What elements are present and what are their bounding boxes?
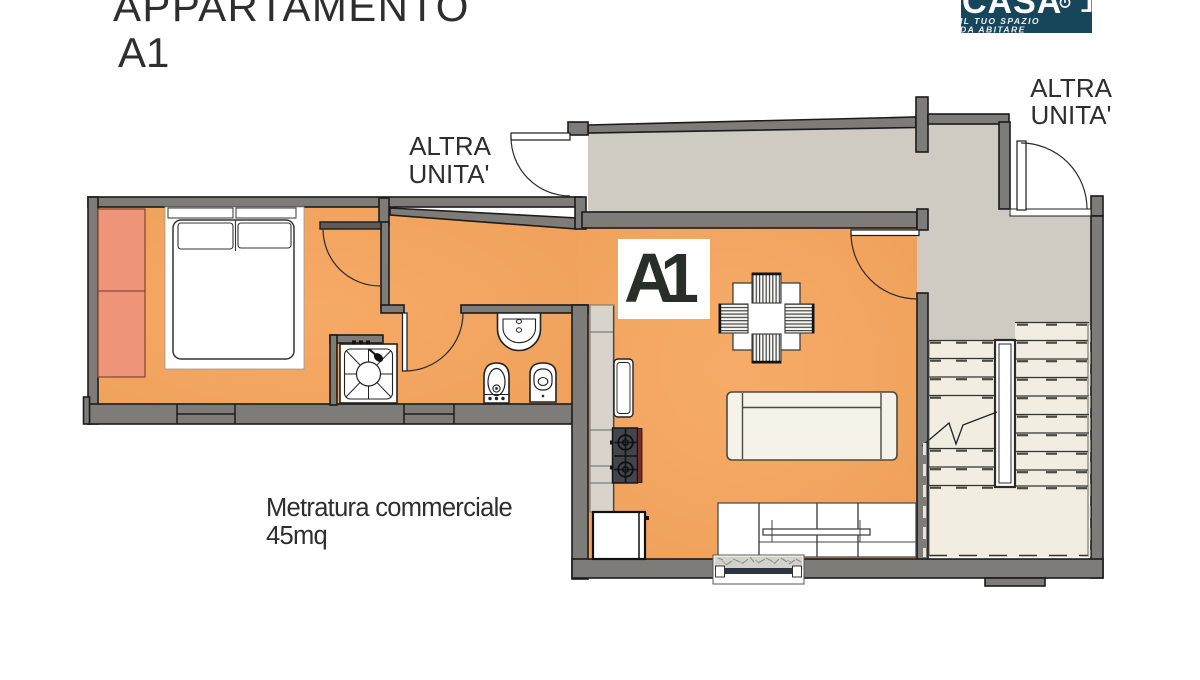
svg-text:ALTRA: ALTRA	[409, 131, 492, 161]
svg-text:Metratura commerciale: Metratura commerciale	[266, 494, 513, 522]
svg-text:ALTRA: ALTRA	[1030, 73, 1113, 103]
svg-text:UNITA': UNITA'	[1030, 100, 1111, 130]
svg-text:DA ABITARE: DA ABITARE	[960, 25, 1026, 35]
svg-text:APPARTAMENTO: APPARTAMENTO	[113, 0, 470, 30]
svg-text:A1: A1	[118, 29, 169, 76]
svg-text:1: 1	[660, 239, 699, 317]
svg-text:45mq: 45mq	[266, 522, 327, 550]
svg-text:UNITA': UNITA'	[408, 159, 489, 189]
